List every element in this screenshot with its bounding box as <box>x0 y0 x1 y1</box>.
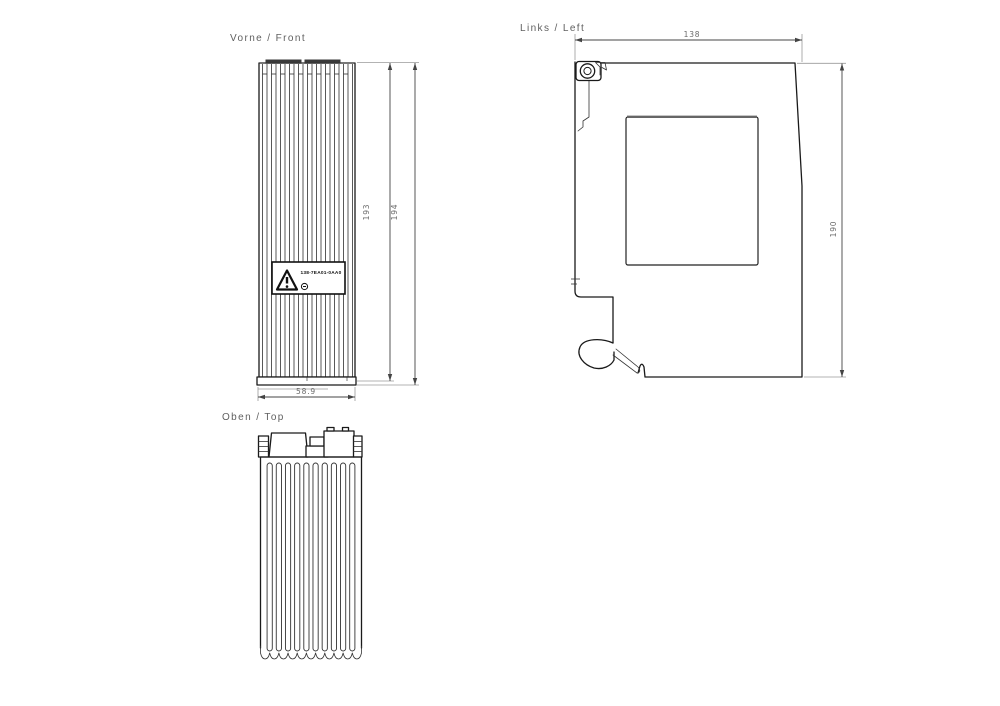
drawing-page: Vorne / Front 138-7EA01-0AA0 <box>0 0 1000 706</box>
top-connector-bump <box>343 428 349 432</box>
din-rail-clip <box>579 340 614 369</box>
left-recess-window <box>626 117 758 265</box>
dim-value-194: 194 <box>390 204 399 221</box>
arrowhead <box>388 63 392 70</box>
left-dim-190: 190 <box>797 63 846 377</box>
top-connector-left <box>269 433 308 457</box>
left-rear-profile <box>575 62 613 343</box>
front-base-bar <box>257 377 356 385</box>
dim-value-190: 190 <box>829 221 838 238</box>
fin-slot <box>295 463 300 651</box>
left-dim-138: 138 <box>575 30 802 62</box>
technical-drawing: Vorne / Front 138-7EA01-0AA0 <box>0 0 1000 706</box>
dim-value-138: 138 <box>684 30 701 39</box>
arrowhead <box>795 38 802 42</box>
front-label-plate: 138-7EA01-0AA0 <box>272 262 345 294</box>
arrowhead <box>840 64 844 71</box>
front-view-title: Vorne / Front <box>230 33 306 44</box>
label-part-number: 138-7EA01-0AA0 <box>301 270 342 276</box>
fin-slot <box>331 463 336 651</box>
fin-slot <box>341 463 346 651</box>
top-connector-bump <box>327 428 334 432</box>
arrowhead <box>348 395 355 399</box>
left-profile-step <box>578 81 589 131</box>
fin-slot <box>304 463 309 651</box>
fin-slot <box>276 463 281 651</box>
top-view-title: Oben / Top <box>222 412 285 423</box>
top-middle-block <box>310 437 324 446</box>
fin-slot <box>267 463 272 651</box>
top-connector-right <box>324 431 354 457</box>
top-connectors <box>259 428 363 458</box>
arrowhead <box>258 395 265 399</box>
fin-slot <box>350 463 355 651</box>
fin-slot <box>313 463 318 651</box>
left-view: Links / Left 138 <box>520 23 846 377</box>
dim-value-58-9: 58.9 <box>296 387 316 396</box>
front-view: Vorne / Front 138-7EA01-0AA0 <box>230 33 419 401</box>
dim-value-193: 193 <box>362 204 371 221</box>
arrowhead <box>413 378 417 385</box>
latch-circle-icon <box>580 64 594 78</box>
front-heatsink-fins <box>263 64 353 377</box>
arrowhead <box>388 374 392 381</box>
arrowhead <box>575 38 582 42</box>
arrowhead <box>413 63 417 70</box>
top-view: Oben / Top <box>222 412 362 659</box>
top-fin-tips <box>261 646 362 659</box>
left-view-title: Links / Left <box>520 23 585 34</box>
fin-slot <box>322 463 327 651</box>
top-body-outline <box>261 457 362 648</box>
top-fin-slots <box>267 463 355 651</box>
front-heatsink-body <box>259 63 355 377</box>
din-release-tab <box>613 349 640 373</box>
latch-housing <box>576 62 607 81</box>
fin-slot <box>285 463 290 651</box>
arrowhead <box>840 370 844 377</box>
